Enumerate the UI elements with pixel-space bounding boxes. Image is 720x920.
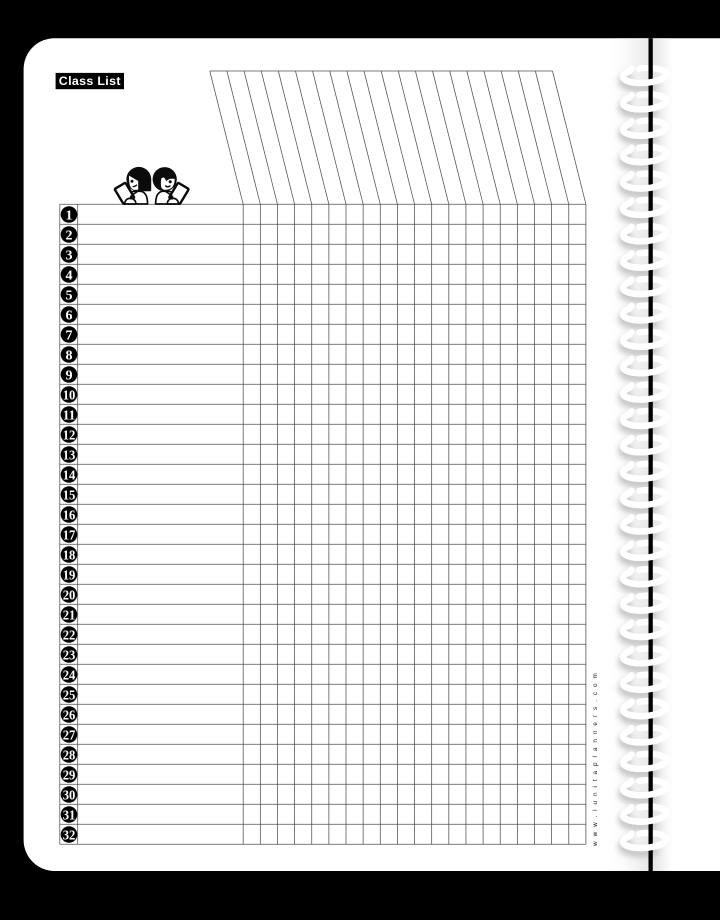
svg-text:16: 16 xyxy=(63,508,76,523)
svg-text:19: 19 xyxy=(63,568,76,583)
svg-text:10: 10 xyxy=(63,388,76,403)
svg-text:31: 31 xyxy=(63,808,76,823)
svg-text:2: 2 xyxy=(66,228,73,243)
svg-text:6: 6 xyxy=(66,308,73,323)
svg-text:4: 4 xyxy=(66,268,73,283)
svg-text:25: 25 xyxy=(63,688,76,703)
svg-text:11: 11 xyxy=(63,408,76,423)
svg-text:7: 7 xyxy=(66,328,73,343)
svg-text:32: 32 xyxy=(63,828,76,843)
svg-text:24: 24 xyxy=(63,668,76,683)
svg-text:30: 30 xyxy=(63,788,76,803)
svg-text:27: 27 xyxy=(63,728,76,743)
svg-text:www.lunitaplanners.com: www.lunitaplanners.com xyxy=(592,668,599,847)
svg-text:23: 23 xyxy=(63,648,76,663)
svg-text:14: 14 xyxy=(63,468,76,483)
svg-text:9: 9 xyxy=(66,368,73,383)
svg-text:22: 22 xyxy=(63,628,76,643)
svg-text:15: 15 xyxy=(63,488,76,503)
svg-text:17: 17 xyxy=(63,528,76,543)
svg-text:21: 21 xyxy=(63,608,76,623)
svg-text:26: 26 xyxy=(63,708,76,723)
svg-text:3: 3 xyxy=(66,248,73,263)
svg-text:29: 29 xyxy=(63,768,76,783)
svg-text:Class List: Class List xyxy=(59,74,121,88)
svg-text:20: 20 xyxy=(63,588,76,603)
svg-text:1: 1 xyxy=(66,208,73,223)
svg-text:12: 12 xyxy=(63,428,76,443)
svg-text:5: 5 xyxy=(66,288,73,303)
svg-text:18: 18 xyxy=(63,548,76,563)
svg-text:28: 28 xyxy=(63,748,76,763)
svg-text:8: 8 xyxy=(66,348,73,363)
svg-text:13: 13 xyxy=(63,448,76,463)
